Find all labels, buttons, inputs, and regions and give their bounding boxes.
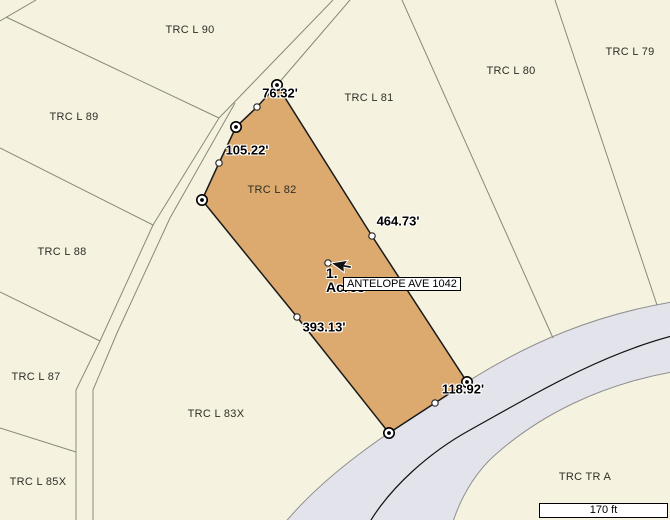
map-viewport[interactable]: TRC L 90 TRC L 79 TRC L 80 TRC L 81 TRC … bbox=[0, 0, 670, 520]
mouse-cursor-icon bbox=[331, 253, 354, 274]
cursor-layer bbox=[0, 0, 670, 520]
